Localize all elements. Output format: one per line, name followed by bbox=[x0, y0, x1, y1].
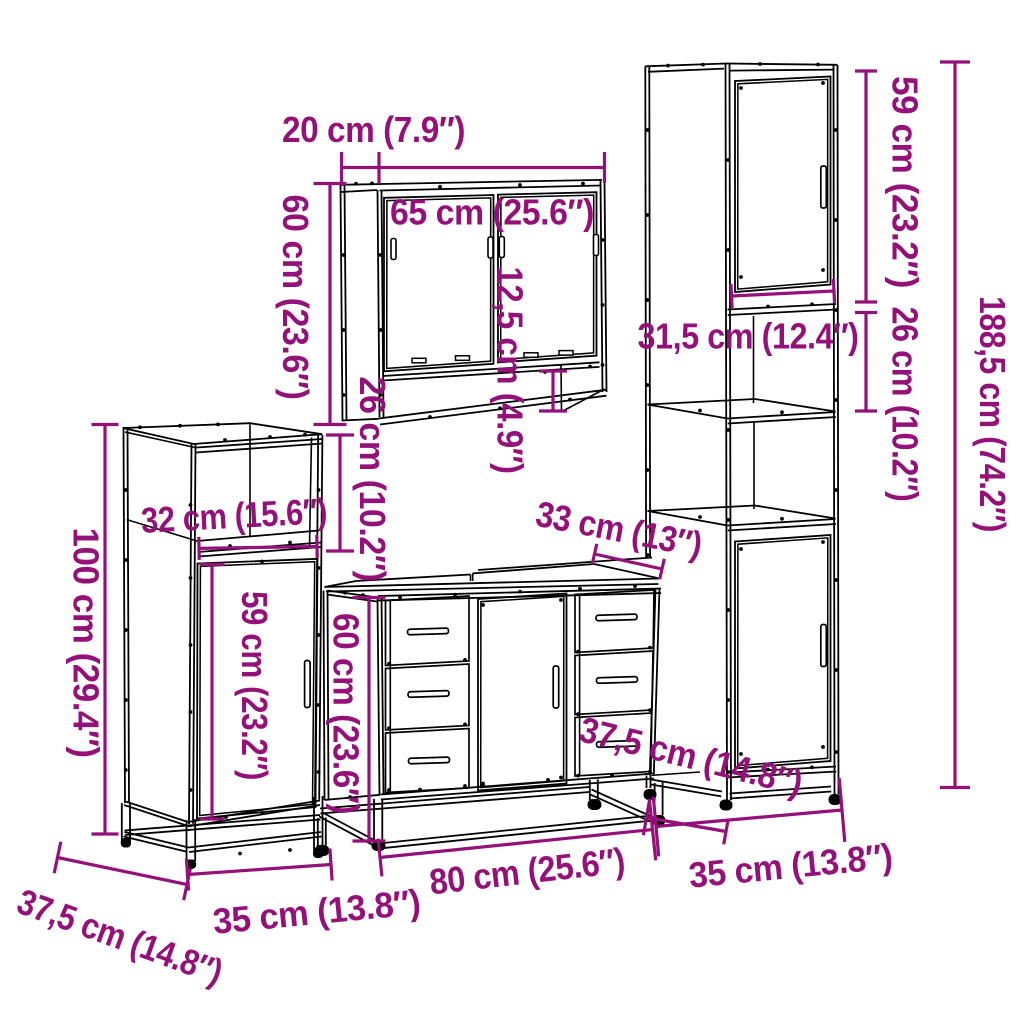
svg-text:26 cm (10.2″): 26 cm (10.2″) bbox=[352, 377, 393, 582]
svg-text:26 cm (10.2″): 26 cm (10.2″) bbox=[885, 307, 926, 502]
svg-text:60 cm (23.6″): 60 cm (23.6″) bbox=[275, 195, 316, 400]
svg-text:65 cm (25.6″): 65 cm (25.6″) bbox=[390, 192, 594, 233]
svg-text:20 cm (7.9″): 20 cm (7.9″) bbox=[282, 109, 465, 150]
svg-text:12,5 cm (4.9″): 12,5 cm (4.9″) bbox=[490, 267, 531, 474]
svg-text:60 cm (23.6″): 60 cm (23.6″) bbox=[326, 613, 367, 814]
svg-text:59 cm (23.2″): 59 cm (23.2″) bbox=[234, 591, 275, 780]
svg-text:100 cm (29.4″): 100 cm (29.4″) bbox=[66, 528, 107, 758]
svg-text:31,5 cm (12.4″): 31,5 cm (12.4″) bbox=[638, 316, 859, 357]
svg-text:59 cm (23.2″): 59 cm (23.2″) bbox=[885, 76, 926, 288]
svg-text:188,5 cm (74.2″): 188,5 cm (74.2″) bbox=[972, 296, 1013, 532]
